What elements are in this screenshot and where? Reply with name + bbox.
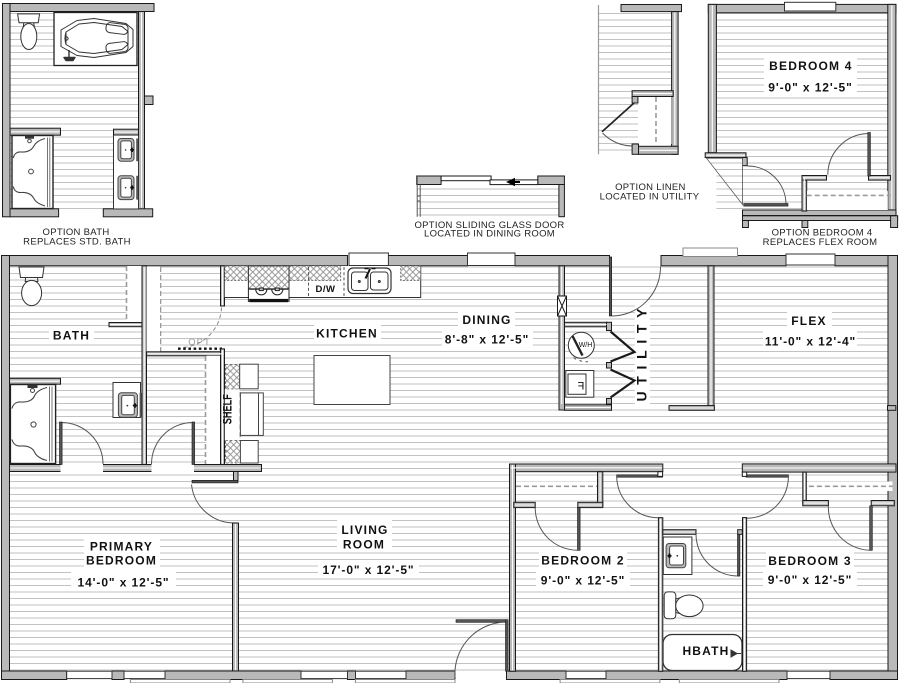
svg-text:14'-0" x 12'-5": 14'-0" x 12'-5": [78, 576, 170, 590]
svg-text:OPT: OPT: [188, 337, 211, 348]
svg-text:9'-0" x 12'-5": 9'-0" x 12'-5": [768, 573, 852, 587]
svg-text:HBATH: HBATH: [682, 644, 729, 658]
svg-text:F: F: [577, 381, 584, 393]
svg-text:DINING: DINING: [462, 313, 511, 327]
svg-text:BEDROOM 4: BEDROOM 4: [769, 59, 852, 73]
svg-text:9'-0" x 12'-5": 9'-0" x 12'-5": [768, 80, 852, 94]
svg-text:BATH: BATH: [53, 329, 90, 343]
svg-text:REPLACES STD. BATH: REPLACES STD. BATH: [23, 237, 131, 248]
svg-text:BEDROOM 3: BEDROOM 3: [768, 554, 851, 568]
svg-text:9'-0" x 12'-5": 9'-0" x 12'-5": [541, 574, 625, 588]
svg-text:LIVING: LIVING: [341, 523, 388, 537]
svg-text:KITCHEN: KITCHEN: [316, 327, 378, 341]
svg-text:W/H: W/H: [579, 342, 593, 349]
svg-text:PRIMARY: PRIMARY: [90, 540, 153, 554]
svg-text:LOCATED IN DINING ROOM: LOCATED IN DINING ROOM: [424, 229, 555, 240]
svg-text:REPLACES FLEX ROOM: REPLACES FLEX ROOM: [763, 237, 878, 248]
svg-text:BEDROOM: BEDROOM: [86, 554, 157, 568]
svg-text:ROOM: ROOM: [343, 538, 385, 552]
svg-text:11'-0" x 12'-4": 11'-0" x 12'-4": [765, 335, 856, 349]
svg-text:FLEX: FLEX: [791, 314, 826, 328]
svg-text:17'-0" x 12'-5": 17'-0" x 12'-5": [323, 563, 415, 577]
svg-text:BEDROOM 2: BEDROOM 2: [541, 554, 624, 568]
svg-text:8'-8" x 12'-5": 8'-8" x 12'-5": [445, 333, 529, 347]
svg-text:LOCATED IN UTILITY: LOCATED IN UTILITY: [600, 192, 700, 203]
svg-text:D/W: D/W: [316, 284, 336, 295]
